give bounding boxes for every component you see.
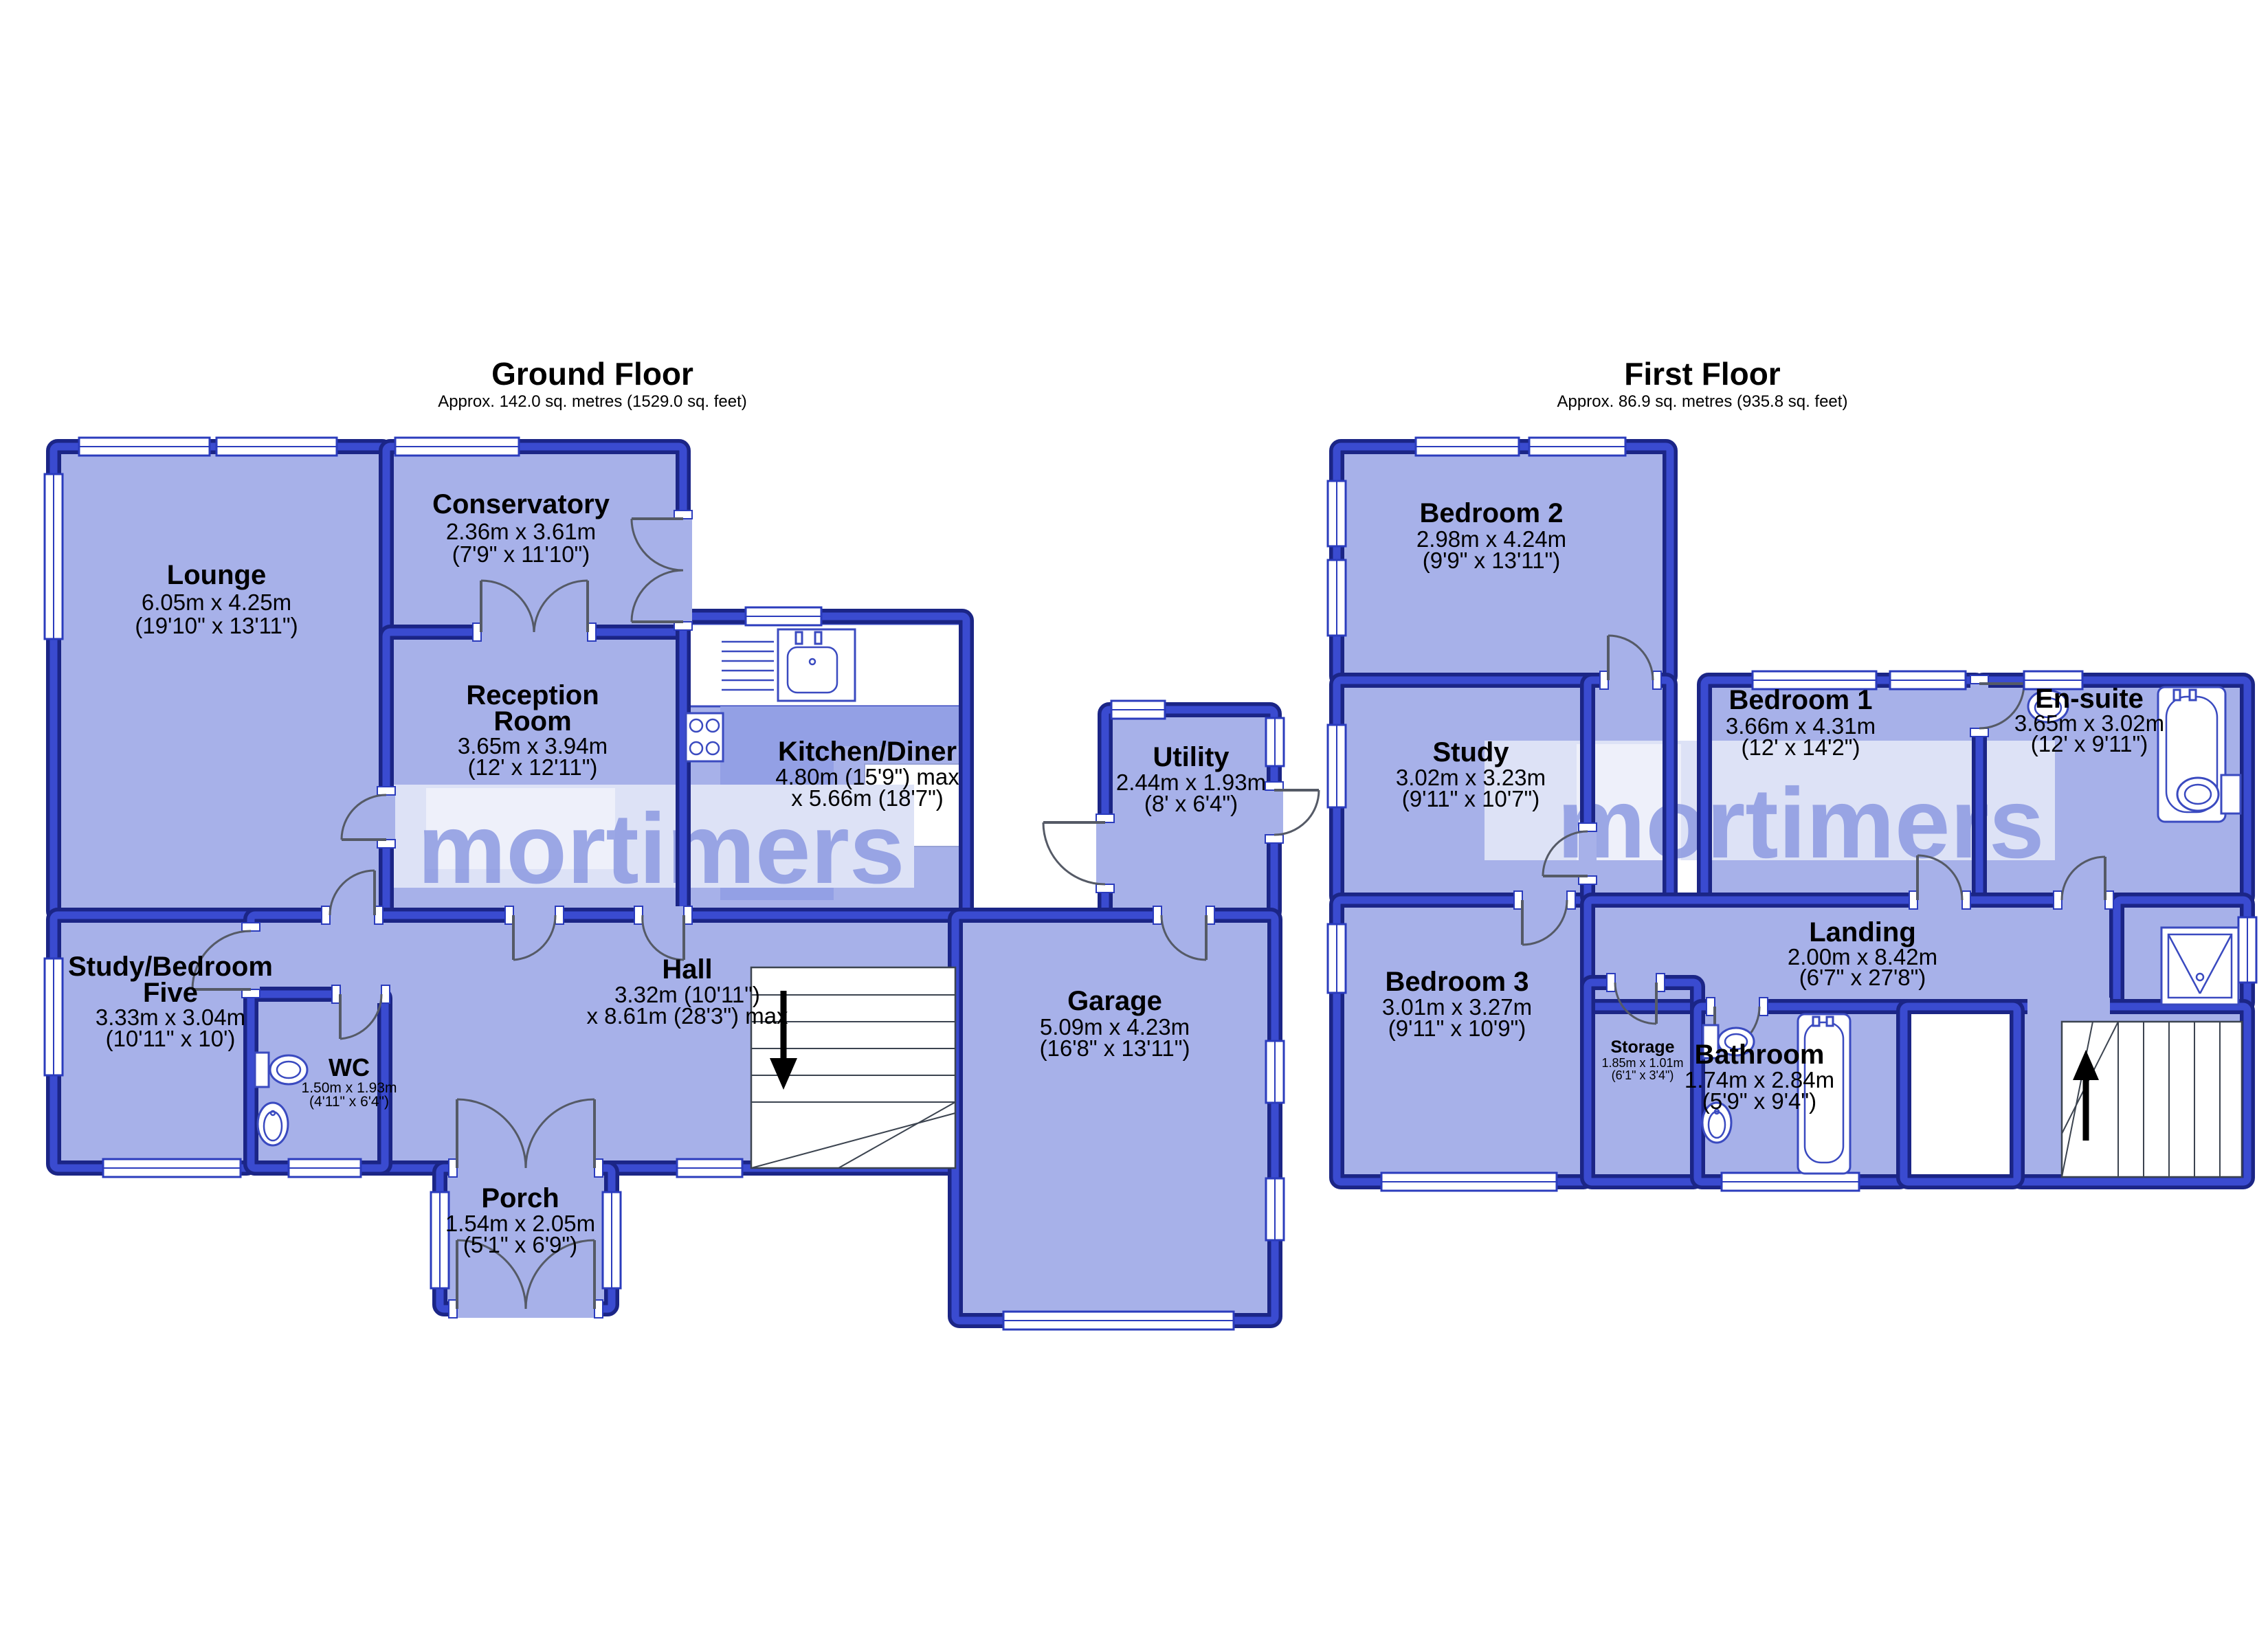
- room-bedroom2: Bedroom 22.98m x 4.24m(9'9" x 13'11"): [1416, 498, 1566, 573]
- svg-text:(12' x 9'11"): (12' x 9'11"): [2031, 731, 2148, 756]
- room-bedroom3: Bedroom 33.01m x 3.27m(9'11" x 10'9"): [1382, 967, 1532, 1041]
- stairs: [2062, 1022, 2242, 1177]
- window: [431, 1192, 449, 1288]
- svg-text:(16'8" x 13'11"): (16'8" x 13'11"): [1040, 1035, 1190, 1061]
- svg-text:Hall: Hall: [662, 954, 712, 985]
- svg-text:(4'11" x 6'4"): (4'11" x 6'4"): [309, 1094, 389, 1110]
- first-floor-plan: First Floor Approx. 86.9 sq. metres (935…: [1328, 356, 2256, 1191]
- room-landing: Landing2.00m x 8.42m(6'7" x 27'8"): [1788, 917, 1937, 990]
- window: [1890, 671, 1966, 689]
- svg-text:(5'9" x 9'4"): (5'9" x 9'4"): [1702, 1088, 1816, 1114]
- svg-text:6.05m x 4.25m: 6.05m x 4.25m: [142, 590, 291, 615]
- svg-text:(8' x 6'4"): (8' x 6'4"): [1144, 791, 1238, 816]
- svg-text:Utility: Utility: [1153, 742, 1230, 772]
- svg-text:(5'1" x 6'9"): (5'1" x 6'9"): [463, 1232, 577, 1257]
- svg-text:(9'11" x 10'7"): (9'11" x 10'7"): [1402, 786, 1540, 811]
- window: [1328, 725, 1346, 807]
- svg-text:Lounge: Lounge: [167, 560, 266, 590]
- window: [395, 438, 519, 456]
- window: [1381, 1173, 1557, 1191]
- svg-text:Bathroom: Bathroom: [1695, 1040, 1825, 1070]
- room-ensuite: En-suite3.65m x 3.02m(12' x 9'11"): [2014, 684, 2164, 756]
- svg-text:Garage: Garage: [1067, 986, 1162, 1016]
- window: [1416, 438, 1519, 456]
- ground-floor-title: Ground Floor: [491, 356, 693, 392]
- svg-text:Storage: Storage: [1610, 1037, 1674, 1057]
- door-kitchen-utility: [1043, 814, 1114, 893]
- svg-text:(7'9" x 11'10"): (7'9" x 11'10"): [452, 541, 590, 567]
- window: [746, 607, 821, 625]
- svg-text:Bedroom 1: Bedroom 1: [1729, 685, 1873, 715]
- first-floor-subtitle: Approx. 86.9 sq. metres (935.8 sq. feet): [1557, 392, 1848, 411]
- svg-text:(9'11" x 10'9"): (9'11" x 10'9"): [1388, 1016, 1526, 1041]
- window: [79, 438, 210, 456]
- shower-fixture: [2161, 928, 2238, 1005]
- window: [1328, 924, 1346, 993]
- svg-text:Kitchen/Diner: Kitchen/Diner: [778, 737, 957, 767]
- window: [45, 474, 63, 639]
- svg-text:x 5.66m (18'7"): x 5.66m (18'7"): [791, 785, 944, 811]
- svg-text:(9'9" x 13'11"): (9'9" x 13'11"): [1423, 548, 1561, 573]
- ground-floor-subtitle: Approx. 142.0 sq. metres (1529.0 sq. fee…: [438, 392, 747, 411]
- svg-text:(12' x 14'2"): (12' x 14'2"): [1742, 734, 1860, 760]
- window: [1266, 1041, 1284, 1103]
- room-storage: Storage1.85m x 1.01m(6'1" x 3'4"): [1601, 1037, 1683, 1082]
- stairs: [751, 967, 955, 1168]
- svg-text:Five: Five: [143, 978, 198, 1008]
- window: [1328, 481, 1346, 546]
- window: [603, 1192, 621, 1288]
- window: [1266, 1178, 1284, 1240]
- floorplan-page: Ground Floor Approx. 142.0 sq. metres (1…: [0, 0, 2268, 1649]
- garage-door: [1003, 1312, 1234, 1330]
- svg-text:Landing: Landing: [1809, 917, 1916, 947]
- room-kitchen: Kitchen/Diner4.80m (15'9") maxx 5.66m (1…: [775, 737, 959, 811]
- watermark: mortimers: [1485, 741, 2055, 879]
- svg-text:Bedroom 2: Bedroom 2: [1420, 498, 1564, 528]
- svg-text:Porch: Porch: [481, 1183, 559, 1213]
- svg-text:En-suite: En-suite: [2035, 684, 2144, 714]
- svg-text:Room: Room: [493, 706, 571, 737]
- room-bathroom: Bathroom1.74m x 2.84m(5'9" x 9'4"): [1685, 1040, 1834, 1114]
- window: [2238, 917, 2256, 983]
- window: [1529, 438, 1625, 456]
- door-utility-exterior: [1265, 782, 1319, 843]
- window: [216, 438, 337, 456]
- window: [103, 1159, 241, 1177]
- svg-text:(6'1" x 3'4"): (6'1" x 3'4"): [1612, 1068, 1674, 1082]
- svg-text:(19'10" x 13'11"): (19'10" x 13'11"): [135, 613, 298, 638]
- ensuite-toilet-fixture: [2177, 775, 2241, 814]
- first-floor-title: First Floor: [1624, 356, 1781, 392]
- svg-text:Bedroom 3: Bedroom 3: [1386, 967, 1529, 997]
- svg-text:Conservatory: Conservatory: [432, 489, 610, 519]
- svg-text:1.85m x 1.01m: 1.85m x 1.01m: [1601, 1056, 1683, 1070]
- window: [1111, 701, 1165, 719]
- svg-text:(12' x 12'11"): (12' x 12'11"): [468, 754, 598, 780]
- window: [45, 958, 63, 1075]
- svg-text:2.36m x 3.61m: 2.36m x 3.61m: [446, 519, 596, 544]
- window: [1722, 1173, 1859, 1191]
- room-bedroom1: Bedroom 13.66m x 4.31m(12' x 14'2"): [1726, 685, 1876, 760]
- window: [289, 1159, 361, 1177]
- hob-fixture: [686, 713, 723, 761]
- window: [677, 1159, 742, 1177]
- svg-text:(6'7" x 27'8"): (6'7" x 27'8"): [1799, 965, 1926, 990]
- svg-text:x 8.61m (28'3") max: x 8.61m (28'3") max: [586, 1003, 788, 1029]
- wc-basin-fixture: [258, 1103, 288, 1145]
- svg-text:WC: WC: [329, 1053, 370, 1081]
- window: [1266, 718, 1284, 766]
- window: [1328, 560, 1346, 636]
- svg-text:mortimers: mortimers: [1557, 767, 2044, 879]
- svg-text:Study: Study: [1432, 737, 1509, 767]
- ground-floor-plan: Ground Floor Approx. 142.0 sq. metres (1…: [45, 356, 1319, 1330]
- room-conservatory: Conservatory2.36m x 3.61m(7'9" x 11'10"): [432, 489, 610, 567]
- svg-text:(10'11" x 10'): (10'11" x 10'): [106, 1026, 236, 1051]
- wc-toilet-fixture: [255, 1053, 307, 1087]
- floorplan-svg: Ground Floor Approx. 142.0 sq. metres (1…: [0, 0, 2268, 1649]
